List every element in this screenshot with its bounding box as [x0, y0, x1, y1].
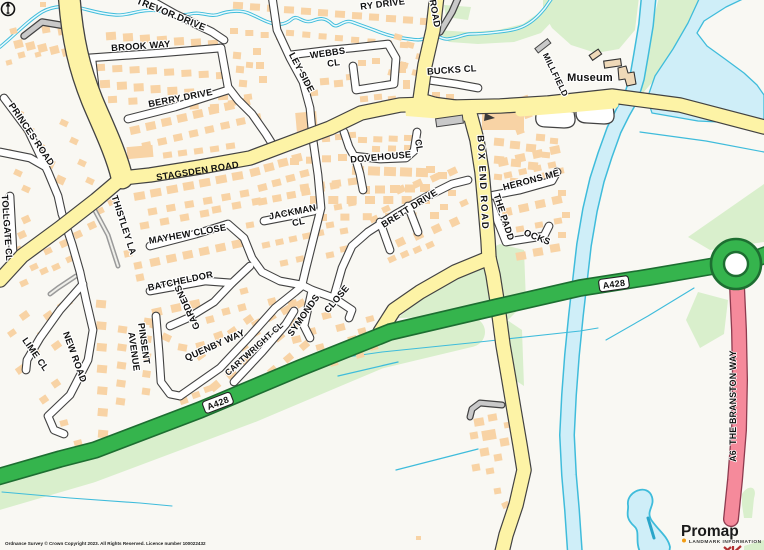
- svg-text:Museum: Museum: [567, 72, 613, 84]
- svg-text:CL: CL: [327, 57, 341, 69]
- svg-text:LANDMARK INFORMATION: LANDMARK INFORMATION: [689, 539, 762, 545]
- svg-text:Promap: Promap: [681, 523, 739, 540]
- svg-text:Ordnance Survey © Crown Copyri: Ordnance Survey © Crown Copyright 2023. …: [5, 540, 206, 546]
- svg-text:A6 THE BRANSTON WAY: A6 THE BRANSTON WAY: [728, 350, 738, 462]
